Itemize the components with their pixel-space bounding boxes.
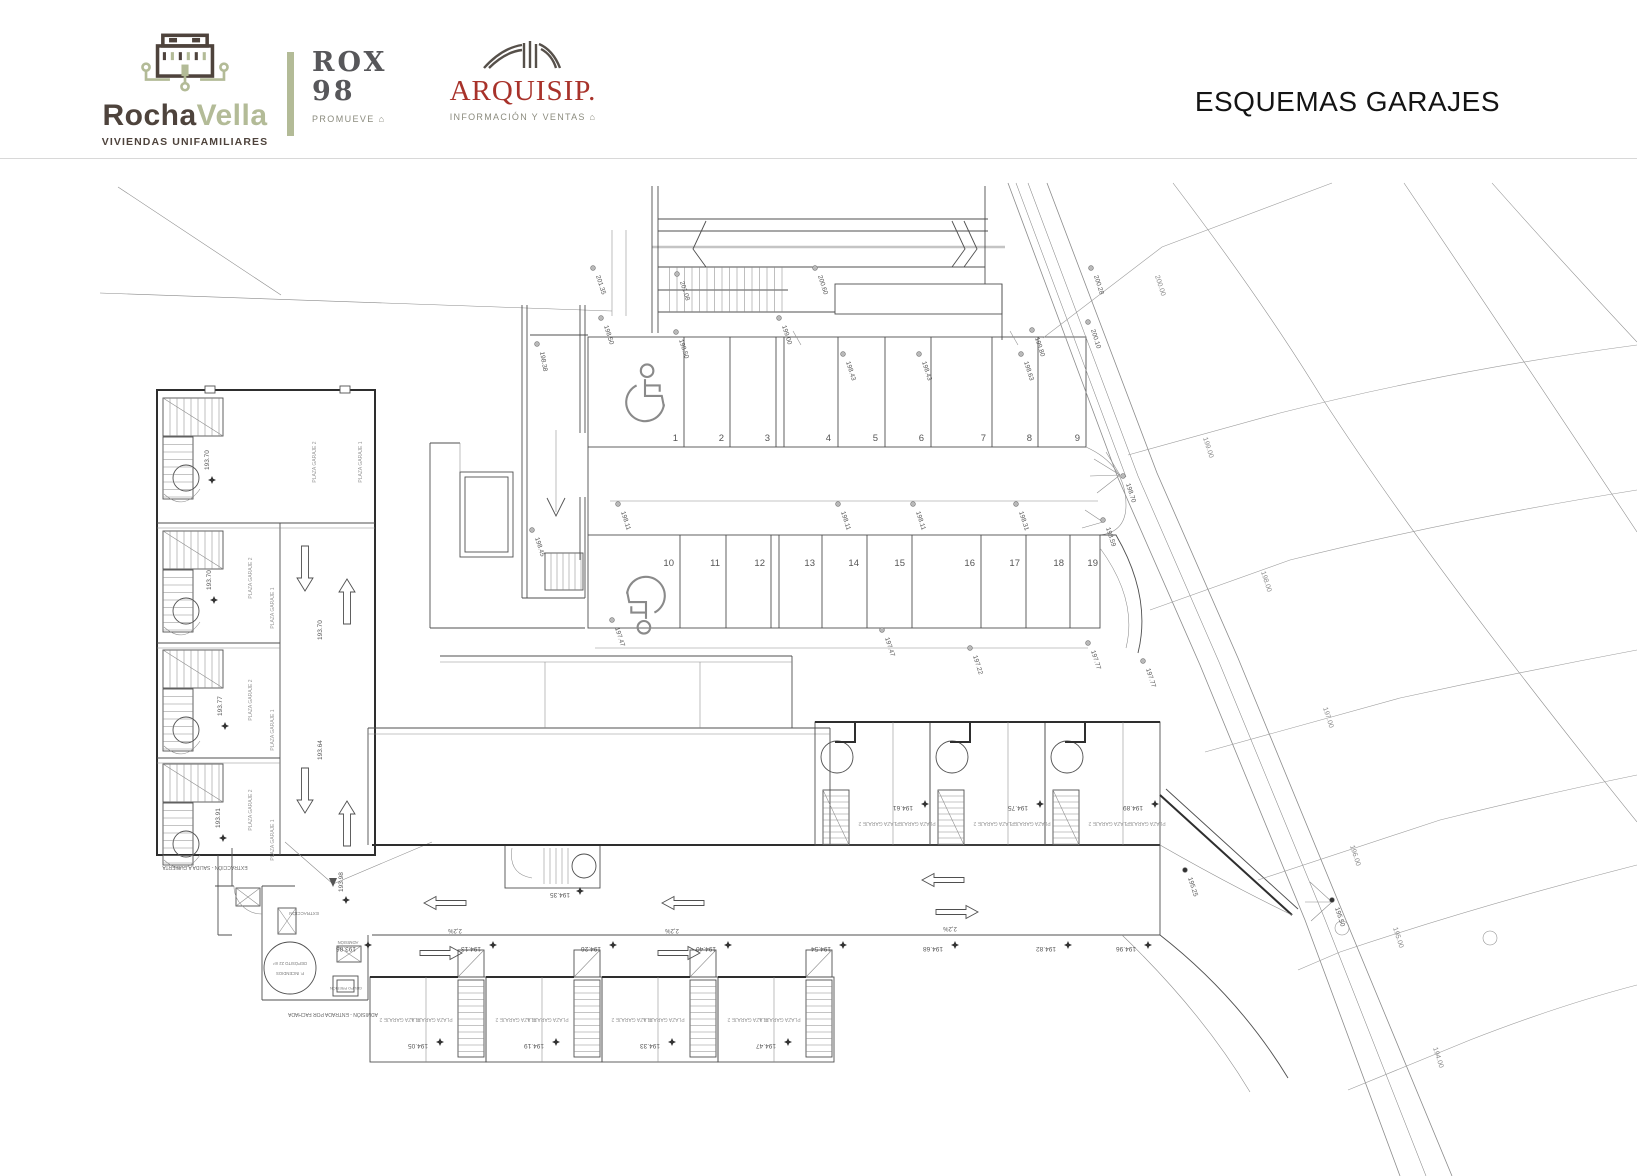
garage-space-label: PLAZA GARAJE 1 xyxy=(270,819,276,860)
benchmark-diamond-icon xyxy=(1144,941,1152,949)
rox-name: ROX xyxy=(312,48,387,77)
header: RochaVella VIVIENDAS UNIFAMILIARES ROX 9… xyxy=(0,0,1637,158)
survey-point-icon xyxy=(674,330,679,335)
garage-space-label: PLAZA GARAJE 1 xyxy=(270,587,276,628)
exit-retaining-walls xyxy=(1122,789,1298,1092)
garage-space-label: PLAZA GARAJE 1 xyxy=(358,441,364,482)
elevation-label: 193.70 xyxy=(204,450,211,470)
right-ramp-arrow xyxy=(658,947,700,960)
elevation-label: 2,2% xyxy=(448,927,462,933)
elevation-label: 195.00 xyxy=(1391,926,1404,949)
elevation-label: 197.22 xyxy=(971,654,984,675)
up-ramp-arrow xyxy=(339,579,355,624)
elevation-label: 198.11 xyxy=(839,510,852,531)
elevation-label: DEPÓSITO 22 m³ xyxy=(273,961,307,966)
rocha-vella-wordmark: RochaVella xyxy=(95,99,275,133)
benchmark-diamond-icon xyxy=(951,941,959,949)
rocha-tagline: VIVIENDAS UNIFAMILIARES xyxy=(95,136,275,148)
benchmark-diamond-icon xyxy=(221,722,229,730)
benchmark-diamond-icon xyxy=(489,941,497,949)
survey-point-icon xyxy=(591,266,596,271)
garage-space-label: PLAZA GARAJE 2 xyxy=(248,789,254,830)
survey-point-icon xyxy=(813,266,818,271)
garage-space-label: PLAZA GARAJE 1 xyxy=(527,1016,568,1022)
survey-marks xyxy=(1082,452,1497,945)
entry-corridor xyxy=(430,305,585,628)
elevation-label: 197.47 xyxy=(883,636,896,657)
survey-point-icon xyxy=(599,316,604,321)
contour-lines xyxy=(1043,183,1637,1090)
elevation-label: 193.64 xyxy=(317,740,324,760)
parking-space-number: 15 xyxy=(894,558,905,569)
garage-space-label: PLAZA GARAJE 2 xyxy=(248,679,254,720)
elevation-label: 199.00 xyxy=(780,324,793,345)
elevation-label: 198.50 xyxy=(602,324,615,345)
elevation-label: 195.25 xyxy=(1186,876,1199,897)
elevation-label: 201.08 xyxy=(678,280,691,301)
parking-space-number: 3 xyxy=(765,433,770,444)
benchmark-diamond-icon xyxy=(436,1038,444,1046)
benchmark-diamond-icon xyxy=(609,941,617,949)
parcel-boundaries xyxy=(1173,183,1637,822)
benchmark-diamond-icon xyxy=(784,1038,792,1046)
elevation-label: 194.96 xyxy=(1116,945,1136,952)
parking-space-number: 19 xyxy=(1087,558,1098,569)
elevation-label: 194.19 xyxy=(524,1042,544,1049)
left-ramp-arrow xyxy=(922,874,964,887)
elevation-label: 198.43 xyxy=(844,360,857,381)
survey-point-icon xyxy=(1330,898,1335,903)
survey-point-icon xyxy=(968,646,973,651)
site-boundary xyxy=(100,187,626,316)
elevation-label: 194.54 xyxy=(811,945,831,952)
elevation-label: 199.00 xyxy=(1201,436,1214,459)
parking-space-number: 18 xyxy=(1053,558,1064,569)
survey-point-icon xyxy=(841,352,846,357)
survey-point-icon xyxy=(777,316,782,321)
elevation-label: 193.77 xyxy=(217,696,224,716)
benchmark-diamond-icon xyxy=(1064,941,1072,949)
benchmark-diamond-icon xyxy=(1151,800,1159,808)
parking-space-number: 1 xyxy=(673,433,678,444)
elevation-label: 200.60 xyxy=(816,274,829,295)
right-ramp-arrow xyxy=(420,947,462,960)
elevation-label: 200.28 xyxy=(1092,274,1105,295)
elevation-label: 194.13 xyxy=(461,945,481,952)
elevation-label: 201.35 xyxy=(594,274,607,295)
arquisip-logo: ARQUISIP. INFORMACIÓN Y VENTAS ⌂ xyxy=(438,38,608,122)
rox-tagline: PROMUEVE ⌂ xyxy=(312,114,387,124)
elevation-label: 197.77 xyxy=(1144,667,1157,688)
accessible-parking-icon xyxy=(626,364,664,421)
benchmark-diamond-icon xyxy=(210,596,218,604)
survey-point-icon xyxy=(616,502,621,507)
elevation-label: 194.00 xyxy=(1431,1046,1444,1069)
elevation-label: 200.00 xyxy=(1153,274,1166,297)
elevation-label: P. INCENDIOS xyxy=(276,971,304,976)
parking-space-number: 6 xyxy=(919,433,924,444)
elevation-label: 194.61 xyxy=(893,804,913,811)
benchmark-diamond-icon xyxy=(724,941,732,949)
page: { "header": { "rocha": {"word1":"Rocha",… xyxy=(0,0,1637,1176)
page-title: ESQUEMAS GARAJES xyxy=(1195,86,1500,118)
elevation-label: 198.38 xyxy=(538,351,548,372)
elevation-label: 197.00 xyxy=(1321,706,1334,729)
parking-space-number: 5 xyxy=(873,433,878,444)
survey-point-icon xyxy=(1019,352,1024,357)
elevation-label: 199.80 xyxy=(1033,336,1046,357)
left-garage-block xyxy=(157,386,432,887)
elevation-label: 198.31 xyxy=(1017,510,1030,531)
elevation-label: 198.11 xyxy=(619,510,632,531)
benchmark-diamond-icon xyxy=(1036,800,1044,808)
elevation-label: GRUPO PRESIÓN xyxy=(330,986,362,991)
parking-row-b xyxy=(588,535,1142,653)
elevation-label: 194.75 xyxy=(1008,804,1028,811)
survey-point-icon xyxy=(610,618,615,623)
elevation-label: 198.00 xyxy=(1259,570,1272,593)
elevation-label: 197.77 xyxy=(1089,649,1102,670)
parking-space-number: 7 xyxy=(981,433,986,444)
elevation-label: 200.10 xyxy=(1089,328,1102,349)
garage-space-label: PLAZA GARAJE 1 xyxy=(894,820,935,826)
elevation-label: EXTRACCIÓN - SALIDA A CUBIERTA xyxy=(162,864,248,871)
left-ramp-arrow xyxy=(424,897,466,910)
parking-space-number: 8 xyxy=(1027,433,1032,444)
elevation-label: EXTRACCIÓN xyxy=(289,911,319,917)
header-rule xyxy=(0,158,1637,159)
elevation-label: 2,2% xyxy=(665,927,679,933)
elevation-label: 194.47 xyxy=(756,1042,776,1049)
parking-space-number: 10 xyxy=(663,558,674,569)
benchmark-diamond-icon xyxy=(219,834,227,842)
survey-point-icon xyxy=(1183,868,1188,873)
garage-space-label: PLAZA GARAJE 1 xyxy=(270,709,276,750)
garage-space-label: PLAZA GARAJE 1 xyxy=(1124,820,1165,826)
survey-point-icon xyxy=(917,352,922,357)
survey-point-icon xyxy=(880,628,885,633)
left-ramp-arrow xyxy=(662,897,704,910)
garage-space-label: PLAZA GARAJE 2 xyxy=(1088,820,1129,826)
parking-aisle xyxy=(610,447,1126,535)
elevation-label: ADMISIÓN - ENTRADA POR FACHADA xyxy=(287,1011,378,1018)
arquisip-tagline: INFORMACIÓN Y VENTAS ⌂ xyxy=(438,112,608,122)
garage-floor-plan: 201.35201.08200.60199.00200.28200.10199.… xyxy=(0,160,1637,1176)
elevation-label: ADMISIÓN xyxy=(338,940,359,945)
arquisip-name: ARQUISIP. xyxy=(438,75,608,108)
elevation-label: 196.00 xyxy=(1348,844,1361,867)
parking-row-a xyxy=(588,331,1086,447)
elevation-label: 194.68 xyxy=(923,945,943,952)
garage-space-label: PLAZA GARAJE 1 xyxy=(1009,820,1050,826)
right-ramp-arrow xyxy=(936,906,978,919)
rox-number: 98 xyxy=(312,77,387,106)
down-ramp-arrow xyxy=(297,768,313,813)
elevation-label: 194.05 xyxy=(408,1042,428,1049)
survey-point-icon xyxy=(1086,641,1091,646)
garage-space-label: PLAZA GARAJE 2 xyxy=(973,820,1014,826)
benchmark-diamond-icon xyxy=(364,941,372,949)
parking-space-number: 13 xyxy=(804,558,815,569)
up-ramp-arrow xyxy=(339,801,355,846)
elevation-label: 194.40 xyxy=(696,945,716,952)
pedestrian-lobby xyxy=(505,845,600,888)
survey-point-icon xyxy=(911,502,916,507)
elevation-label: 197.47 xyxy=(613,626,626,647)
survey-point-icon xyxy=(1014,502,1019,507)
elevation-label: 198.11 xyxy=(914,510,927,531)
elevation-label: 193.70 xyxy=(206,570,213,590)
rocha-vella-building-icon xyxy=(130,30,240,92)
elevation-label: 194.89 xyxy=(1123,804,1143,811)
elevation-label: 193.70 xyxy=(317,620,324,640)
elevation-label: 194.33 xyxy=(640,1042,660,1049)
garage-space-label: PLAZA GARAJE 1 xyxy=(411,1016,452,1022)
bottom-ramp-aisle xyxy=(372,845,1160,960)
survey-point-icon xyxy=(535,342,540,347)
survey-point-icon xyxy=(675,272,680,277)
survey-point-icon xyxy=(1101,518,1106,523)
parking-space-number: 11 xyxy=(710,558,720,569)
vella-word: Vella xyxy=(197,99,268,132)
rocha-vella-logo: RochaVella VIVIENDAS UNIFAMILIARES xyxy=(95,30,275,148)
benchmark-diamond-icon xyxy=(839,941,847,949)
parking-space-number: 12 xyxy=(754,558,765,569)
benchmark-diamond-icon xyxy=(208,476,216,484)
garage-space-label: PLAZA GARAJE 2 xyxy=(248,557,254,598)
header-divider-bar xyxy=(287,52,294,136)
arquisip-skyline-icon xyxy=(478,38,568,70)
survey-point-icon xyxy=(1030,328,1035,333)
elevation-label: 193.91 xyxy=(215,808,222,828)
survey-point-icon xyxy=(1086,320,1091,325)
parking-space-number: 16 xyxy=(964,558,975,569)
survey-point-icon xyxy=(1121,474,1126,479)
garage-space-label: PLAZA GARAJE 1 xyxy=(643,1016,684,1022)
parking-space-number: 4 xyxy=(826,433,831,444)
rox98-logo: ROX 98 PROMUEVE ⌂ xyxy=(312,48,387,124)
benchmark-diamond-icon xyxy=(668,1038,676,1046)
plan-annotations: 201.35201.08200.60199.00200.28200.10199.… xyxy=(162,266,1445,1069)
rocha-word: Rocha xyxy=(102,99,196,132)
survey-point-icon xyxy=(530,528,535,533)
elevation-label: 193.86 xyxy=(336,945,356,952)
survey-point-icon xyxy=(836,502,841,507)
elevation-label: 194.82 xyxy=(1036,945,1056,952)
survey-point-icon xyxy=(1141,659,1146,664)
survey-point-icon xyxy=(1089,266,1094,271)
accessible-parking-icon xyxy=(627,577,665,634)
elevation-label: 198.63 xyxy=(1022,360,1035,381)
benchmark-diamond-icon xyxy=(342,896,350,904)
benchmark-diamond-icon xyxy=(552,1038,560,1046)
central-zone xyxy=(368,656,830,845)
elevation-label: 2,2% xyxy=(943,925,957,931)
elevation-label: 194.26 xyxy=(581,945,601,952)
garage-space-label: PLAZA GARAJE 2 xyxy=(312,441,318,482)
elevation-label: 198.45 xyxy=(533,536,546,557)
parking-space-number: 14 xyxy=(848,558,859,569)
elevation-label: 193.98 xyxy=(338,872,345,892)
garage-space-label: PLAZA GARAJE 2 xyxy=(858,820,899,826)
elevation-label: 195.50 xyxy=(1333,906,1346,927)
garage-space-label: PLAZA GARAJE 1 xyxy=(759,1016,800,1022)
road xyxy=(1008,183,1452,1176)
stair-hatching xyxy=(163,267,1079,1052)
elevation-label: 194.35 xyxy=(550,891,570,898)
parking-space-number: 9 xyxy=(1075,433,1080,444)
parking-space-number: 17 xyxy=(1009,558,1020,569)
elevation-label: 198.50 xyxy=(677,338,690,359)
benchmark-diamond-icon xyxy=(921,800,929,808)
down-ramp-arrow xyxy=(297,546,313,591)
parking-space-number: 2 xyxy=(719,433,724,444)
